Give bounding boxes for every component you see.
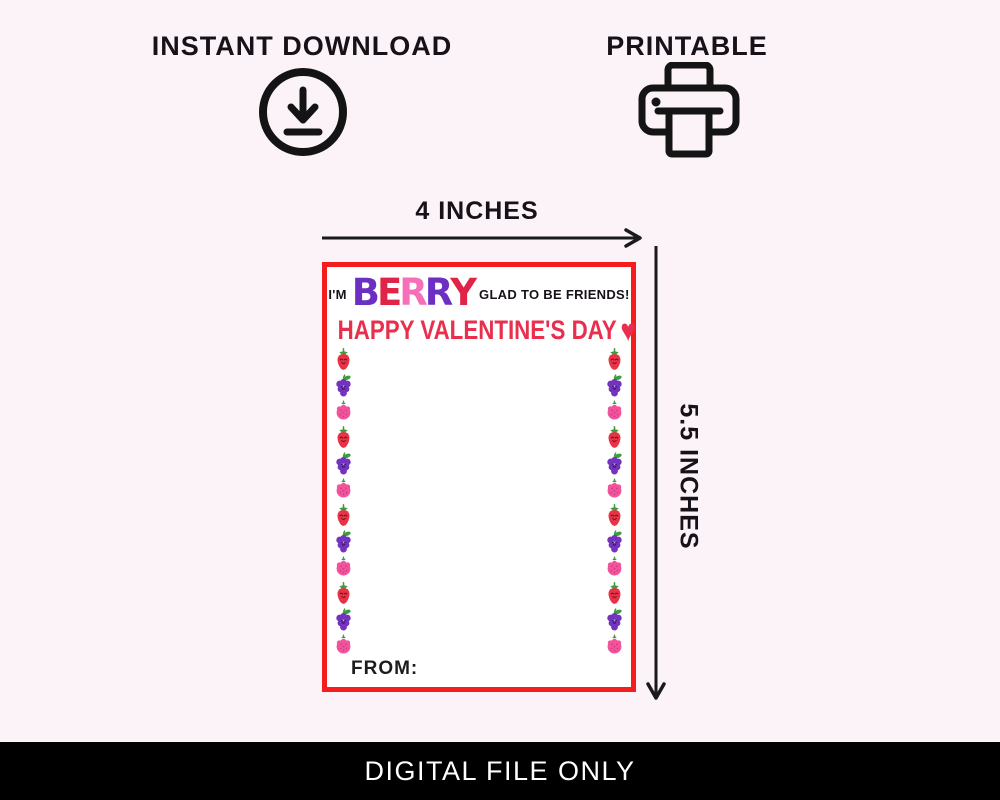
strawberry-icon: [604, 348, 625, 371]
greeting-line: I'M BERRY GLAD TO BE FRIENDS!: [327, 276, 631, 313]
raspberry-icon: [333, 400, 354, 423]
raspberry-icon: [333, 634, 354, 657]
grape-icon: [604, 374, 625, 397]
instant-download-label: INSTANT DOWNLOAD: [52, 31, 552, 62]
width-arrow: [320, 226, 650, 250]
raspberry-icon: [604, 400, 625, 423]
width-dimension-label: 4 INCHES: [327, 197, 627, 226]
product-preview-page: INSTANT DOWNLOAD PRINTABLE 4 INCHES 5.5 …: [0, 0, 1000, 800]
greeting-prefix: I'M: [328, 287, 346, 302]
berry-column-left: [333, 348, 354, 657]
printer-icon: [637, 62, 741, 158]
greeting-suffix: GLAD TO BE FRIENDS!: [479, 287, 630, 302]
from-label: FROM:: [351, 658, 418, 680]
height-arrow: [644, 242, 668, 710]
height-dimension-label: 5.5 INCHES: [674, 377, 703, 577]
grape-icon: [333, 530, 354, 553]
raspberry-icon: [604, 556, 625, 579]
berry-letter: Y: [450, 274, 474, 311]
raspberry-icon: [333, 556, 354, 579]
download-circle-icon: [257, 66, 349, 158]
strawberry-icon: [604, 504, 625, 527]
raspberry-icon: [333, 478, 354, 501]
strawberry-icon: [333, 348, 354, 371]
strawberry-icon: [604, 426, 625, 449]
raspberry-icon: [604, 634, 625, 657]
heart-icon: ♥: [620, 313, 635, 348]
valentine-headline: HAPPY VALENTINE'S DAY♥: [338, 313, 621, 349]
valentine-card: I'M BERRY GLAD TO BE FRIENDS! HAPPY VALE…: [322, 262, 636, 692]
berry-letter: B: [352, 274, 377, 311]
footer-bar: DIGITAL FILE ONLY: [0, 742, 1000, 800]
grape-icon: [604, 608, 625, 631]
berry-letter: R: [399, 274, 425, 311]
grape-icon: [333, 452, 354, 475]
grape-icon: [604, 452, 625, 475]
footer-label: DIGITAL FILE ONLY: [364, 756, 635, 787]
strawberry-icon: [333, 504, 354, 527]
grape-icon: [333, 374, 354, 397]
valentine-headline-text: HAPPY VALENTINE'S DAY: [338, 315, 617, 345]
printable-label: PRINTABLE: [487, 31, 887, 62]
strawberry-icon: [333, 426, 354, 449]
grape-icon: [333, 608, 354, 631]
berry-letter: R: [425, 274, 451, 311]
strawberry-icon: [604, 582, 625, 605]
berry-column-right: [604, 348, 625, 657]
grape-icon: [604, 530, 625, 553]
strawberry-icon: [333, 582, 354, 605]
berry-word: BERRY: [352, 276, 474, 313]
berry-letter: E: [377, 274, 399, 311]
raspberry-icon: [604, 478, 625, 501]
